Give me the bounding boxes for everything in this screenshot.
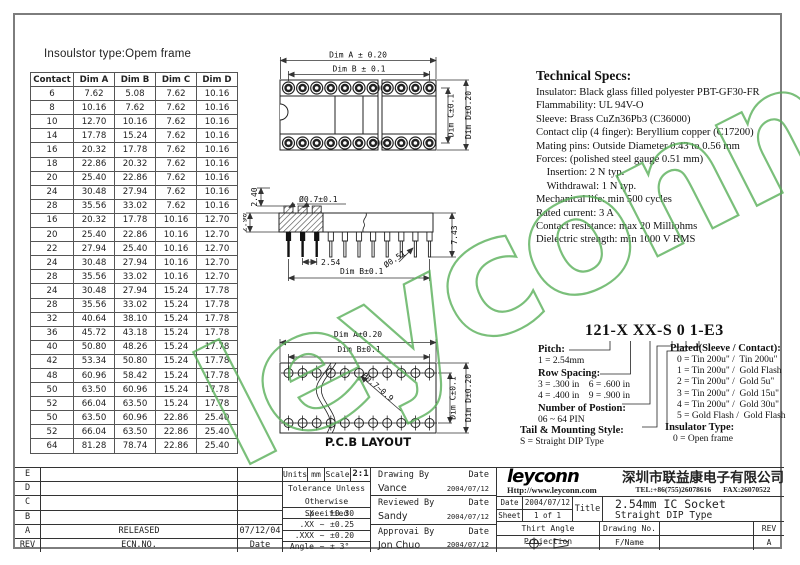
- cell: 58.42: [115, 368, 156, 382]
- cell: A: [15, 525, 41, 538]
- cell: 7.62: [156, 143, 197, 157]
- drawing-by-date: 2004/07/12: [447, 485, 489, 493]
- tail-style-label: Tail & Mounting Style:: [520, 425, 624, 436]
- table-row: 810.167.627.6210.16: [31, 101, 238, 115]
- date-sheet-labels: Date Sheet: [497, 497, 523, 521]
- spec-line: Withdrawal: 1 N typ.: [536, 180, 798, 193]
- cell: 20: [31, 171, 74, 185]
- spec-line: Insertion: 2 N typ.: [536, 166, 798, 179]
- cell: 52: [31, 397, 74, 411]
- cell: .XX: [288, 520, 314, 529]
- cell: 22.86: [115, 171, 156, 185]
- cell: E: [15, 468, 41, 481]
- cell: 7.62: [115, 101, 156, 115]
- cell: 27.94: [115, 256, 156, 270]
- cell: 20: [31, 228, 74, 242]
- cell: 17.78: [115, 143, 156, 157]
- table-row: 3645.7243.1815.2417.78: [31, 326, 238, 340]
- cell: 52: [31, 425, 74, 439]
- cell: ±0.20: [330, 531, 365, 540]
- revision-row: C: [15, 496, 282, 510]
- date-label: Date: [469, 527, 489, 537]
- approval-by-date: 2004/07/12: [447, 541, 489, 549]
- cell: 10.16: [197, 185, 238, 199]
- cell: 28: [31, 199, 74, 213]
- cell: 63.50: [115, 425, 156, 439]
- spec-line: Rated current: 3 A: [536, 207, 798, 220]
- pitch-options: 1 = 2.54mm: [538, 356, 584, 367]
- cell: 15.24: [156, 383, 197, 397]
- dimension-table-body: 67.625.087.6210.16810.167.627.6210.16101…: [31, 87, 238, 453]
- cell: 15.24: [156, 326, 197, 340]
- cell: 35.56: [74, 298, 115, 312]
- cell: 60.96: [74, 368, 115, 382]
- cell: 7.62: [156, 115, 197, 129]
- reviewed-by-row: Reviewed By Date: [371, 496, 496, 510]
- table-row: 67.625.087.6210.16: [31, 87, 238, 101]
- cell: 81.28: [74, 439, 115, 453]
- table-row: 1620.3217.787.6210.16: [31, 143, 238, 157]
- cell: 36: [31, 326, 74, 340]
- plating-option: 5 = Gold Flash / Gold Flash: [677, 411, 786, 422]
- part-number-code: 121-X XX-S 0 1-E3: [585, 322, 724, 340]
- date-label: Date: [469, 498, 489, 508]
- dim-c-label: Dim C±0.1: [447, 94, 456, 138]
- cell: [238, 496, 282, 509]
- table-row: 4253.3450.8015.2417.78: [31, 354, 238, 368]
- table-row: 5266.0463.5015.2417.78: [31, 397, 238, 411]
- approval-by-label: Approvai By: [378, 527, 434, 537]
- insulator-type-label: Insulator Type:: [665, 422, 734, 433]
- cell: 12.70: [197, 228, 238, 242]
- spec-line: Sleeve: Brass CuZn36Pb3 (C36000): [536, 113, 798, 126]
- pcb-dim-b-label: Dim B±0.1: [337, 345, 381, 354]
- table-row: 4050.8048.2615.2417.78: [31, 340, 238, 354]
- cell: 17.78: [197, 354, 238, 368]
- rev-value: A: [754, 536, 784, 550]
- side-view-body: [279, 206, 433, 232]
- specs-title: Technical Specs:: [536, 68, 798, 84]
- cell: 22.86: [156, 439, 197, 453]
- units-scale-row: Units mm Scale 2:1: [283, 468, 370, 482]
- projection-drawingno-row: Thirt Angle Projection Drawing No. REV: [497, 522, 784, 536]
- cell: 7.62: [74, 87, 115, 101]
- cell: 20.32: [74, 143, 115, 157]
- drawing-title: 2.54mm IC Socket Straight DIP Type: [603, 497, 784, 521]
- revision-row: E: [15, 468, 282, 482]
- cell: 10.16: [156, 270, 197, 284]
- cell: 16: [31, 213, 74, 227]
- table-row: 2835.5633.0215.2417.78: [31, 298, 238, 312]
- plating-option: 3 = Tin 200u" / Gold 15u": [677, 389, 786, 400]
- cell: 6: [31, 87, 74, 101]
- revision-row: D: [15, 482, 282, 496]
- cell: 60.96: [115, 383, 156, 397]
- cell: 40.64: [74, 312, 115, 326]
- spec-line: Forces: (polished steel gauge 0.51 mm): [536, 153, 798, 166]
- pitch-label: Pitch:: [538, 344, 565, 355]
- scale-label: Scale: [325, 468, 351, 481]
- cell: 7.62: [156, 199, 197, 213]
- spec-line: Contact resistance: max 20 Milliohms: [536, 220, 798, 233]
- cell: RELEASED: [41, 525, 238, 538]
- cell: 10.16: [197, 129, 238, 143]
- cell: ~: [314, 542, 330, 551]
- cell: [238, 468, 282, 481]
- company-name-cn: 深圳市联益康电子有限公司: [622, 471, 784, 485]
- cell: 10.16: [156, 213, 197, 227]
- cell: 25.40: [197, 439, 238, 453]
- cell: 10.16: [74, 101, 115, 115]
- cell: 12.70: [197, 242, 238, 256]
- pcb-board-outline: [280, 363, 436, 433]
- cell: 28: [31, 270, 74, 284]
- cell: 12.70: [197, 256, 238, 270]
- cell: 12.70: [197, 213, 238, 227]
- table-row: 5063.5060.9622.8625.40: [31, 411, 238, 425]
- cell: ECN.NO.: [41, 539, 238, 552]
- cell: 64: [31, 439, 74, 453]
- pitch-label: 2.54: [321, 258, 340, 267]
- specs-lines: Insulator: Black glass filled polyester …: [536, 86, 798, 247]
- cell: 22.86: [156, 425, 197, 439]
- leyconn-logo: leyconn: [507, 469, 622, 485]
- table-row: 1417.7815.247.6210.16: [31, 129, 238, 143]
- rev-label: REV: [754, 522, 784, 535]
- signature-block: Drawing By Date Vance 2004/07/12 Reviewe…: [371, 468, 497, 552]
- approval-by-row: Approvai By Date: [371, 525, 496, 539]
- cell: 17.78: [197, 383, 238, 397]
- cell: 10.16: [197, 101, 238, 115]
- cell: 63.50: [115, 397, 156, 411]
- cell: 8: [31, 101, 74, 115]
- revision-row: REVECN.NO.Date: [15, 539, 282, 552]
- cell: [41, 496, 238, 509]
- tolerance-block: Units mm Scale 2:1 Tolerance Unless Othe…: [283, 468, 371, 552]
- date-value: 2004/07/12: [523, 497, 572, 510]
- cell: 17.78: [197, 298, 238, 312]
- title-block: EDCBARELEASED07/12/04REVECN.NO.Date Unit…: [15, 467, 784, 551]
- insulator-option: 0 = Open frame: [673, 434, 733, 445]
- cell: 50.80: [74, 340, 115, 354]
- cell: 78.74: [115, 439, 156, 453]
- cell: 10.16: [197, 171, 238, 185]
- cell: 7.62: [156, 101, 197, 115]
- cell: 30.48: [74, 185, 115, 199]
- plating-option: 2 = Tin 200u" / Gold 5u": [677, 377, 786, 388]
- table-row: 1822.8620.327.6210.16: [31, 157, 238, 171]
- cell: 45.72: [74, 326, 115, 340]
- cell: 15.24: [156, 298, 197, 312]
- plating-option: 0 = Tin 200u" / Tin 200u": [677, 355, 786, 366]
- company-header-row: leyconn Http://www.leyconn.com 深圳市联益康电子有…: [497, 468, 784, 497]
- approval-by-name: Jon Chuo: [378, 540, 420, 551]
- cell: 20.32: [74, 213, 115, 227]
- dimension-table-head: ContactDim ADim BDim CDim D: [31, 73, 238, 87]
- cell: 24: [31, 284, 74, 298]
- table-row: 6481.2878.7422.8625.40: [31, 439, 238, 453]
- tolerance-row: .X~±0.30: [283, 508, 370, 519]
- cell: 10.16: [156, 256, 197, 270]
- spec-line: Dielectric strength: min 1000 V RMS: [536, 233, 798, 246]
- cell: C: [15, 496, 41, 509]
- cell: [238, 511, 282, 524]
- cell: B: [15, 511, 41, 524]
- cell: ~: [314, 531, 330, 540]
- socket-side-view-drawing: 2.40 2.90 Ø0.7±0.1 2.54 Ø0.51 Dim B±0.1 …: [243, 183, 500, 315]
- tail-style-option: S = Straight DIP Type: [520, 437, 604, 448]
- cell: [41, 468, 238, 481]
- cell: 10.16: [156, 242, 197, 256]
- cell: 7.62: [156, 157, 197, 171]
- cell: 17.78: [197, 312, 238, 326]
- pcb-caption: P.C.B LAYOUT: [325, 435, 411, 449]
- cell: 15.24: [156, 340, 197, 354]
- cell: 40: [31, 340, 74, 354]
- cell: .X: [288, 509, 314, 518]
- third-angle-projection-icon: [522, 537, 574, 550]
- sheet-label: Sheet: [497, 510, 522, 522]
- cell: 15.24: [156, 368, 197, 382]
- cell: 18: [31, 157, 74, 171]
- table-row: 2430.4827.9410.1612.70: [31, 256, 238, 270]
- cell: 16: [31, 143, 74, 157]
- contact-holes: [283, 82, 436, 149]
- cell: 35.56: [74, 270, 115, 284]
- reviewed-by-values: Sandy 2004/07/12: [371, 510, 496, 525]
- table-row: 5063.5060.9615.2417.78: [31, 383, 238, 397]
- cell: 20.32: [115, 157, 156, 171]
- symbols-fname-row: F/Name A: [497, 536, 784, 550]
- cell: 53.34: [74, 354, 115, 368]
- logo-cell: leyconn Http://www.leyconn.com: [497, 469, 622, 495]
- insulator-type-note: Insoulstor type:Opem frame: [44, 48, 191, 60]
- cell: REV: [15, 539, 41, 552]
- dim-a-label: Dim A ± 0.20: [329, 51, 387, 60]
- cell: 50: [31, 411, 74, 425]
- cell: 38.10: [115, 312, 156, 326]
- cell: 17.78: [197, 284, 238, 298]
- cell: [41, 511, 238, 524]
- cell: 25.40: [74, 171, 115, 185]
- cell: 14: [31, 129, 74, 143]
- fname-value: [660, 536, 754, 550]
- revision-row: ARELEASED07/12/04: [15, 525, 282, 539]
- revision-table: EDCBARELEASED07/12/04REVECN.NO.Date: [15, 468, 283, 552]
- cell: 17.78: [197, 368, 238, 382]
- dim-7-43-label: 7.43: [450, 225, 459, 244]
- column-header: Dim D: [197, 73, 238, 87]
- technical-specs: Technical Specs: Insulator: Black glass …: [536, 68, 798, 247]
- plating-options: 0 = Tin 200u" / Tin 200u"1 = Tin 200u" /…: [677, 355, 786, 422]
- cell: 66.04: [74, 397, 115, 411]
- cell: 28: [31, 298, 74, 312]
- pitch-option: 1 = 2.54mm: [538, 356, 584, 367]
- plating-label: Plated(Sleeve / Contact):: [670, 343, 781, 354]
- cell: 15.24: [115, 129, 156, 143]
- table-row: 2430.4827.947.6210.16: [31, 185, 238, 199]
- cell: 25.40: [115, 242, 156, 256]
- pcb-holes: [281, 366, 437, 431]
- cell: 17.78: [74, 129, 115, 143]
- spec-line: Insulator: Black glass filled polyester …: [536, 86, 798, 99]
- cell: 7.62: [156, 171, 197, 185]
- cell: 32: [31, 312, 74, 326]
- cell: 25.40: [74, 228, 115, 242]
- cell: 48.26: [115, 340, 156, 354]
- spec-line: Contact clip (4 finger): Beryllium coppe…: [536, 126, 798, 139]
- date-label: Date: [497, 497, 522, 510]
- cell: 10.16: [197, 115, 238, 129]
- header-row: ContactDim ADim BDim CDim D: [31, 73, 238, 87]
- cell: ~: [314, 520, 330, 529]
- cell: [238, 482, 282, 495]
- insulator-options: 0 = Open frame: [673, 434, 733, 445]
- approval-by-values: Jon Chuo 2004/07/12: [371, 538, 496, 552]
- cell: .XXX: [288, 531, 314, 540]
- cell: 7.62: [156, 129, 197, 143]
- cell: 12.70: [197, 270, 238, 284]
- cell: 15.24: [156, 397, 197, 411]
- column-header: Contact: [31, 73, 74, 87]
- cell: D: [15, 482, 41, 495]
- cell: 10.16: [197, 199, 238, 213]
- tolerance-row: .XX~±0.25: [283, 519, 370, 530]
- tolerance-row: .XXX~±0.20: [283, 531, 370, 542]
- cell: 60.96: [115, 411, 156, 425]
- units-label: Units: [283, 468, 308, 481]
- cell: 42: [31, 354, 74, 368]
- cell: 22: [31, 242, 74, 256]
- cell: 27.94: [115, 284, 156, 298]
- tolerance-row: Angle~± 3°: [283, 542, 370, 552]
- company-fax: FAX:26070522: [723, 485, 770, 494]
- cell: 15.24: [156, 312, 197, 326]
- table-row: 1620.3217.7810.1612.70: [31, 213, 238, 227]
- cell: 50.80: [115, 354, 156, 368]
- date-sheet-values: 2004/07/12 1 of 1: [523, 497, 573, 521]
- dim-2-90-label: 2.90: [243, 213, 249, 232]
- cell: 10.16: [197, 87, 238, 101]
- pcb-dim-a-label: Dim A±0.20: [334, 330, 382, 339]
- table-row: 2835.5633.0210.1612.70: [31, 270, 238, 284]
- table-row: 2430.4827.9415.2417.78: [31, 284, 238, 298]
- drawing-by-values: Vance 2004/07/12: [371, 482, 496, 497]
- cell: 30.48: [74, 284, 115, 298]
- row-spacing-option: 4 = .400 in 9 = .900 in: [538, 391, 630, 402]
- company-block: leyconn Http://www.leyconn.com 深圳市联益康电子有…: [497, 468, 784, 552]
- socket-top-view-drawing: Dim A ± 0.20 Dim B ± 0.1 Dim C±0.1 Dim D…: [243, 45, 483, 170]
- pcb-dim-c-label: Dim C±0.1: [449, 376, 458, 420]
- dim-d-label: Dim D±0.20: [464, 91, 473, 139]
- column-header: Dim A: [74, 73, 115, 87]
- cell: [41, 482, 238, 495]
- cell: 15.24: [156, 354, 197, 368]
- company-contact: TEL:+86(755)26078616 FAX:26070522: [622, 485, 784, 494]
- table-row: 2835.5633.027.6210.16: [31, 199, 238, 213]
- tolerance-rows: .X~±0.30.XX~±0.25.XXX~±0.20Angle~± 3°: [283, 508, 370, 552]
- drawing-by-name: Vance: [378, 483, 407, 494]
- datasheet-page: Insoulstor type:Opem frame ContactDim AD…: [0, 0, 800, 565]
- sheet-value: 1 of 1: [523, 510, 572, 522]
- cell: ~: [314, 509, 330, 518]
- cell: 15.24: [156, 284, 197, 298]
- cell: 07/12/04: [238, 525, 282, 538]
- pcb-layout-drawing: Dim A±0.20 Dim B±0.1 Ø0.7~0.9 Dim C±0.1 …: [243, 325, 500, 452]
- cell: 17.78: [197, 397, 238, 411]
- pin-diameter-label: Ø0.51: [382, 248, 408, 270]
- cell: 33.02: [115, 199, 156, 213]
- drawing-no-label: Drawing No.: [600, 522, 660, 535]
- cell: 5.08: [115, 87, 156, 101]
- cell: 22.86: [115, 228, 156, 242]
- cell: 33.02: [115, 270, 156, 284]
- cell: ± 3°: [330, 542, 365, 551]
- drawing-title-line1: 2.54mm IC Socket: [615, 498, 784, 510]
- cell: 35.56: [74, 199, 115, 213]
- cell: 10.16: [156, 228, 197, 242]
- company-website: Http://www.leyconn.com: [507, 485, 622, 495]
- dim-b-label: Dim B ± 0.1: [333, 65, 386, 74]
- cell: 66.04: [74, 425, 115, 439]
- table-row: 3240.6438.1015.2417.78: [31, 312, 238, 326]
- cell: 7.62: [156, 87, 197, 101]
- cell: 17.78: [115, 213, 156, 227]
- reviewed-by-date: 2004/07/12: [447, 513, 489, 521]
- cell: 50: [31, 383, 74, 397]
- projection-symbols: [497, 536, 600, 550]
- dim-2-40-label: 2.40: [250, 187, 259, 206]
- title-label: Title: [573, 497, 603, 521]
- plating-option: 4 = Tin 200u" / Gold 30u": [677, 400, 786, 411]
- table-row: 4860.9658.4215.2417.78: [31, 368, 238, 382]
- cell: 24: [31, 256, 74, 270]
- row-spacing-options: 3 = .300 in 6 = .600 in4 = .400 in 9 = .…: [538, 380, 630, 402]
- cell: 33.02: [115, 298, 156, 312]
- company-name-cell: 深圳市联益康电子有限公司 TEL:+86(755)26078616 FAX:26…: [622, 471, 784, 494]
- cell: ±0.25: [330, 520, 365, 529]
- column-header: Dim C: [156, 73, 197, 87]
- fname-label: F/Name: [600, 536, 660, 550]
- cell: ±0.30: [330, 509, 365, 518]
- cell: Date: [238, 539, 282, 552]
- cell: 27.94: [115, 185, 156, 199]
- table-row: 2025.4022.8610.1612.70: [31, 228, 238, 242]
- cell: 25.40: [197, 411, 238, 425]
- cell: Angle: [288, 542, 314, 551]
- drawing-by-row: Drawing By Date: [371, 468, 496, 482]
- cell: 10: [31, 115, 74, 129]
- cell: 43.18: [115, 326, 156, 340]
- revision-row: B: [15, 511, 282, 525]
- date-label: Date: [469, 470, 489, 480]
- scale-value: 2:1: [351, 468, 370, 481]
- cell: 48: [31, 368, 74, 382]
- reviewed-by-name: Sandy: [378, 511, 408, 522]
- table-row: 2025.4022.867.6210.16: [31, 171, 238, 185]
- table-row: 1012.7010.167.6210.16: [31, 115, 238, 129]
- company-tel: TEL:+86(755)26078616: [636, 485, 712, 494]
- cell: 10.16: [197, 157, 238, 171]
- spec-line: Mating pins: Outside Diameter 0.43 to 0.…: [536, 140, 798, 153]
- part-number-legend: 121-X XX-S 0 1-E3 Pitch: 1 = 2.54mm Row …: [505, 322, 797, 465]
- cell: 27.94: [74, 242, 115, 256]
- row-spacing-label: Row Spacing:: [538, 368, 600, 379]
- positions-label: Number of Postion:: [538, 403, 626, 414]
- cell: 30.48: [74, 256, 115, 270]
- projection-label: Thirt Angle Projection: [497, 522, 600, 535]
- plating-option: 1 = Tin 200u" / Gold Flash: [677, 366, 786, 377]
